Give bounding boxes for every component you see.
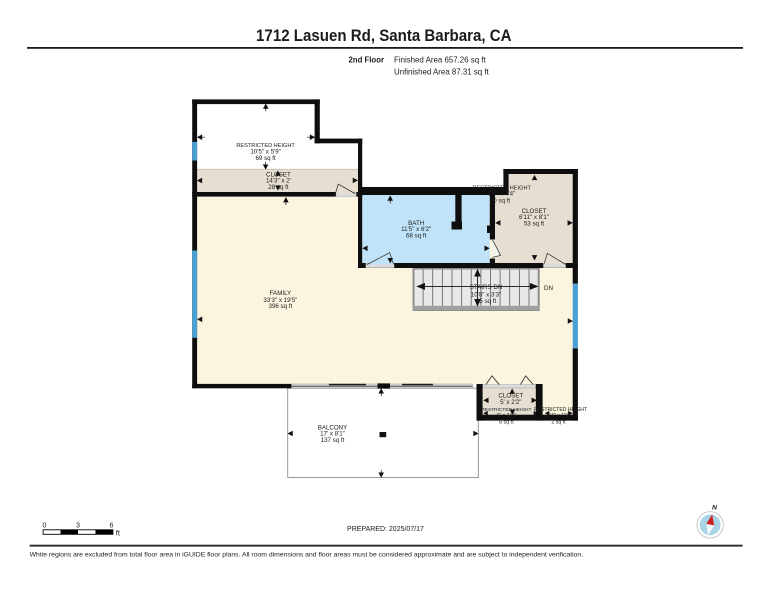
- svg-text:69 sq ft: 69 sq ft: [255, 155, 276, 162]
- svg-text:53 sq ft: 53 sq ft: [524, 220, 545, 227]
- svg-text:6: 6: [110, 522, 114, 529]
- svg-text:White regions are excluded fro: White regions are excluded from total fl…: [30, 552, 584, 559]
- svg-text:Finished Area 657.26 sq ft: Finished Area 657.26 sq ft: [394, 55, 486, 64]
- svg-text:68 sq ft: 68 sq ft: [406, 232, 427, 239]
- svg-text:3: 3: [76, 522, 80, 529]
- svg-text:0 sq ft: 0 sq ft: [493, 198, 510, 205]
- svg-text:Unfinished Area 87.31 sq ft: Unfinished Area 87.31 sq ft: [394, 68, 490, 77]
- svg-text:396 sq ft: 396 sq ft: [269, 303, 293, 310]
- svg-text:2'4" x 1'0": 2'4" x 1'0": [547, 413, 570, 419]
- svg-text:5 sq ft: 5 sq ft: [499, 419, 514, 425]
- svg-text:DN: DN: [544, 285, 553, 292]
- svg-text:28 sq ft: 28 sq ft: [268, 184, 289, 191]
- svg-text:5' x 2'2": 5' x 2'2": [500, 399, 521, 406]
- svg-text:2nd Floor: 2nd Floor: [348, 55, 384, 64]
- svg-text:0: 0: [43, 522, 47, 529]
- svg-text:PREPARED: 2025/07/17: PREPARED: 2025/07/17: [347, 526, 424, 533]
- svg-text:STAIRS DN: STAIRS DN: [470, 284, 503, 291]
- svg-text:1712 Lasuen Rd, Santa Barbara,: 1712 Lasuen Rd, Santa Barbara, CA: [256, 27, 512, 45]
- svg-text:2 sq ft: 2 sq ft: [551, 419, 566, 425]
- svg-text:35 sq ft: 35 sq ft: [476, 298, 497, 305]
- svg-text:5' x 1'0": 5' x 1'0": [497, 413, 516, 419]
- svg-text:137 sq ft: 137 sq ft: [321, 437, 345, 444]
